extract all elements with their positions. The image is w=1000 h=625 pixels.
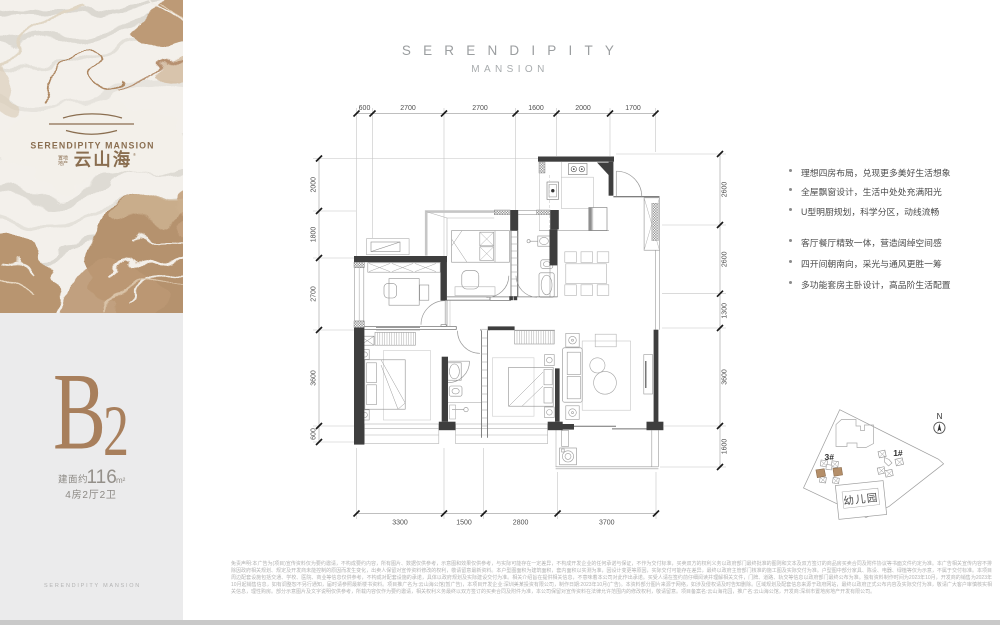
svg-text:1500: 1500 — [456, 520, 472, 527]
svg-text:3600: 3600 — [722, 369, 729, 385]
svg-text:600: 600 — [359, 105, 371, 112]
svg-text:600: 600 — [311, 428, 318, 440]
svg-text:1700: 1700 — [625, 105, 641, 112]
svg-text:2700: 2700 — [311, 286, 318, 302]
svg-text:2600: 2600 — [722, 251, 729, 267]
svg-text:1#: 1# — [893, 448, 903, 458]
svg-text:2000: 2000 — [311, 177, 318, 193]
svg-text:3#: 3# — [825, 452, 835, 462]
svg-text:3700: 3700 — [599, 520, 615, 527]
svg-text:2800: 2800 — [513, 520, 529, 527]
svg-text:N: N — [937, 412, 943, 421]
svg-text:1600: 1600 — [528, 105, 544, 112]
svg-text:2700: 2700 — [400, 105, 416, 112]
svg-text:3600: 3600 — [311, 370, 318, 386]
svg-text:2000: 2000 — [575, 105, 591, 112]
svg-text:2700: 2700 — [472, 105, 488, 112]
svg-text:1800: 1800 — [311, 227, 318, 243]
svg-text:1300: 1300 — [722, 303, 729, 319]
svg-text:3300: 3300 — [392, 520, 408, 527]
svg-text:1600: 1600 — [722, 439, 729, 455]
svg-text:2600: 2600 — [722, 182, 729, 198]
